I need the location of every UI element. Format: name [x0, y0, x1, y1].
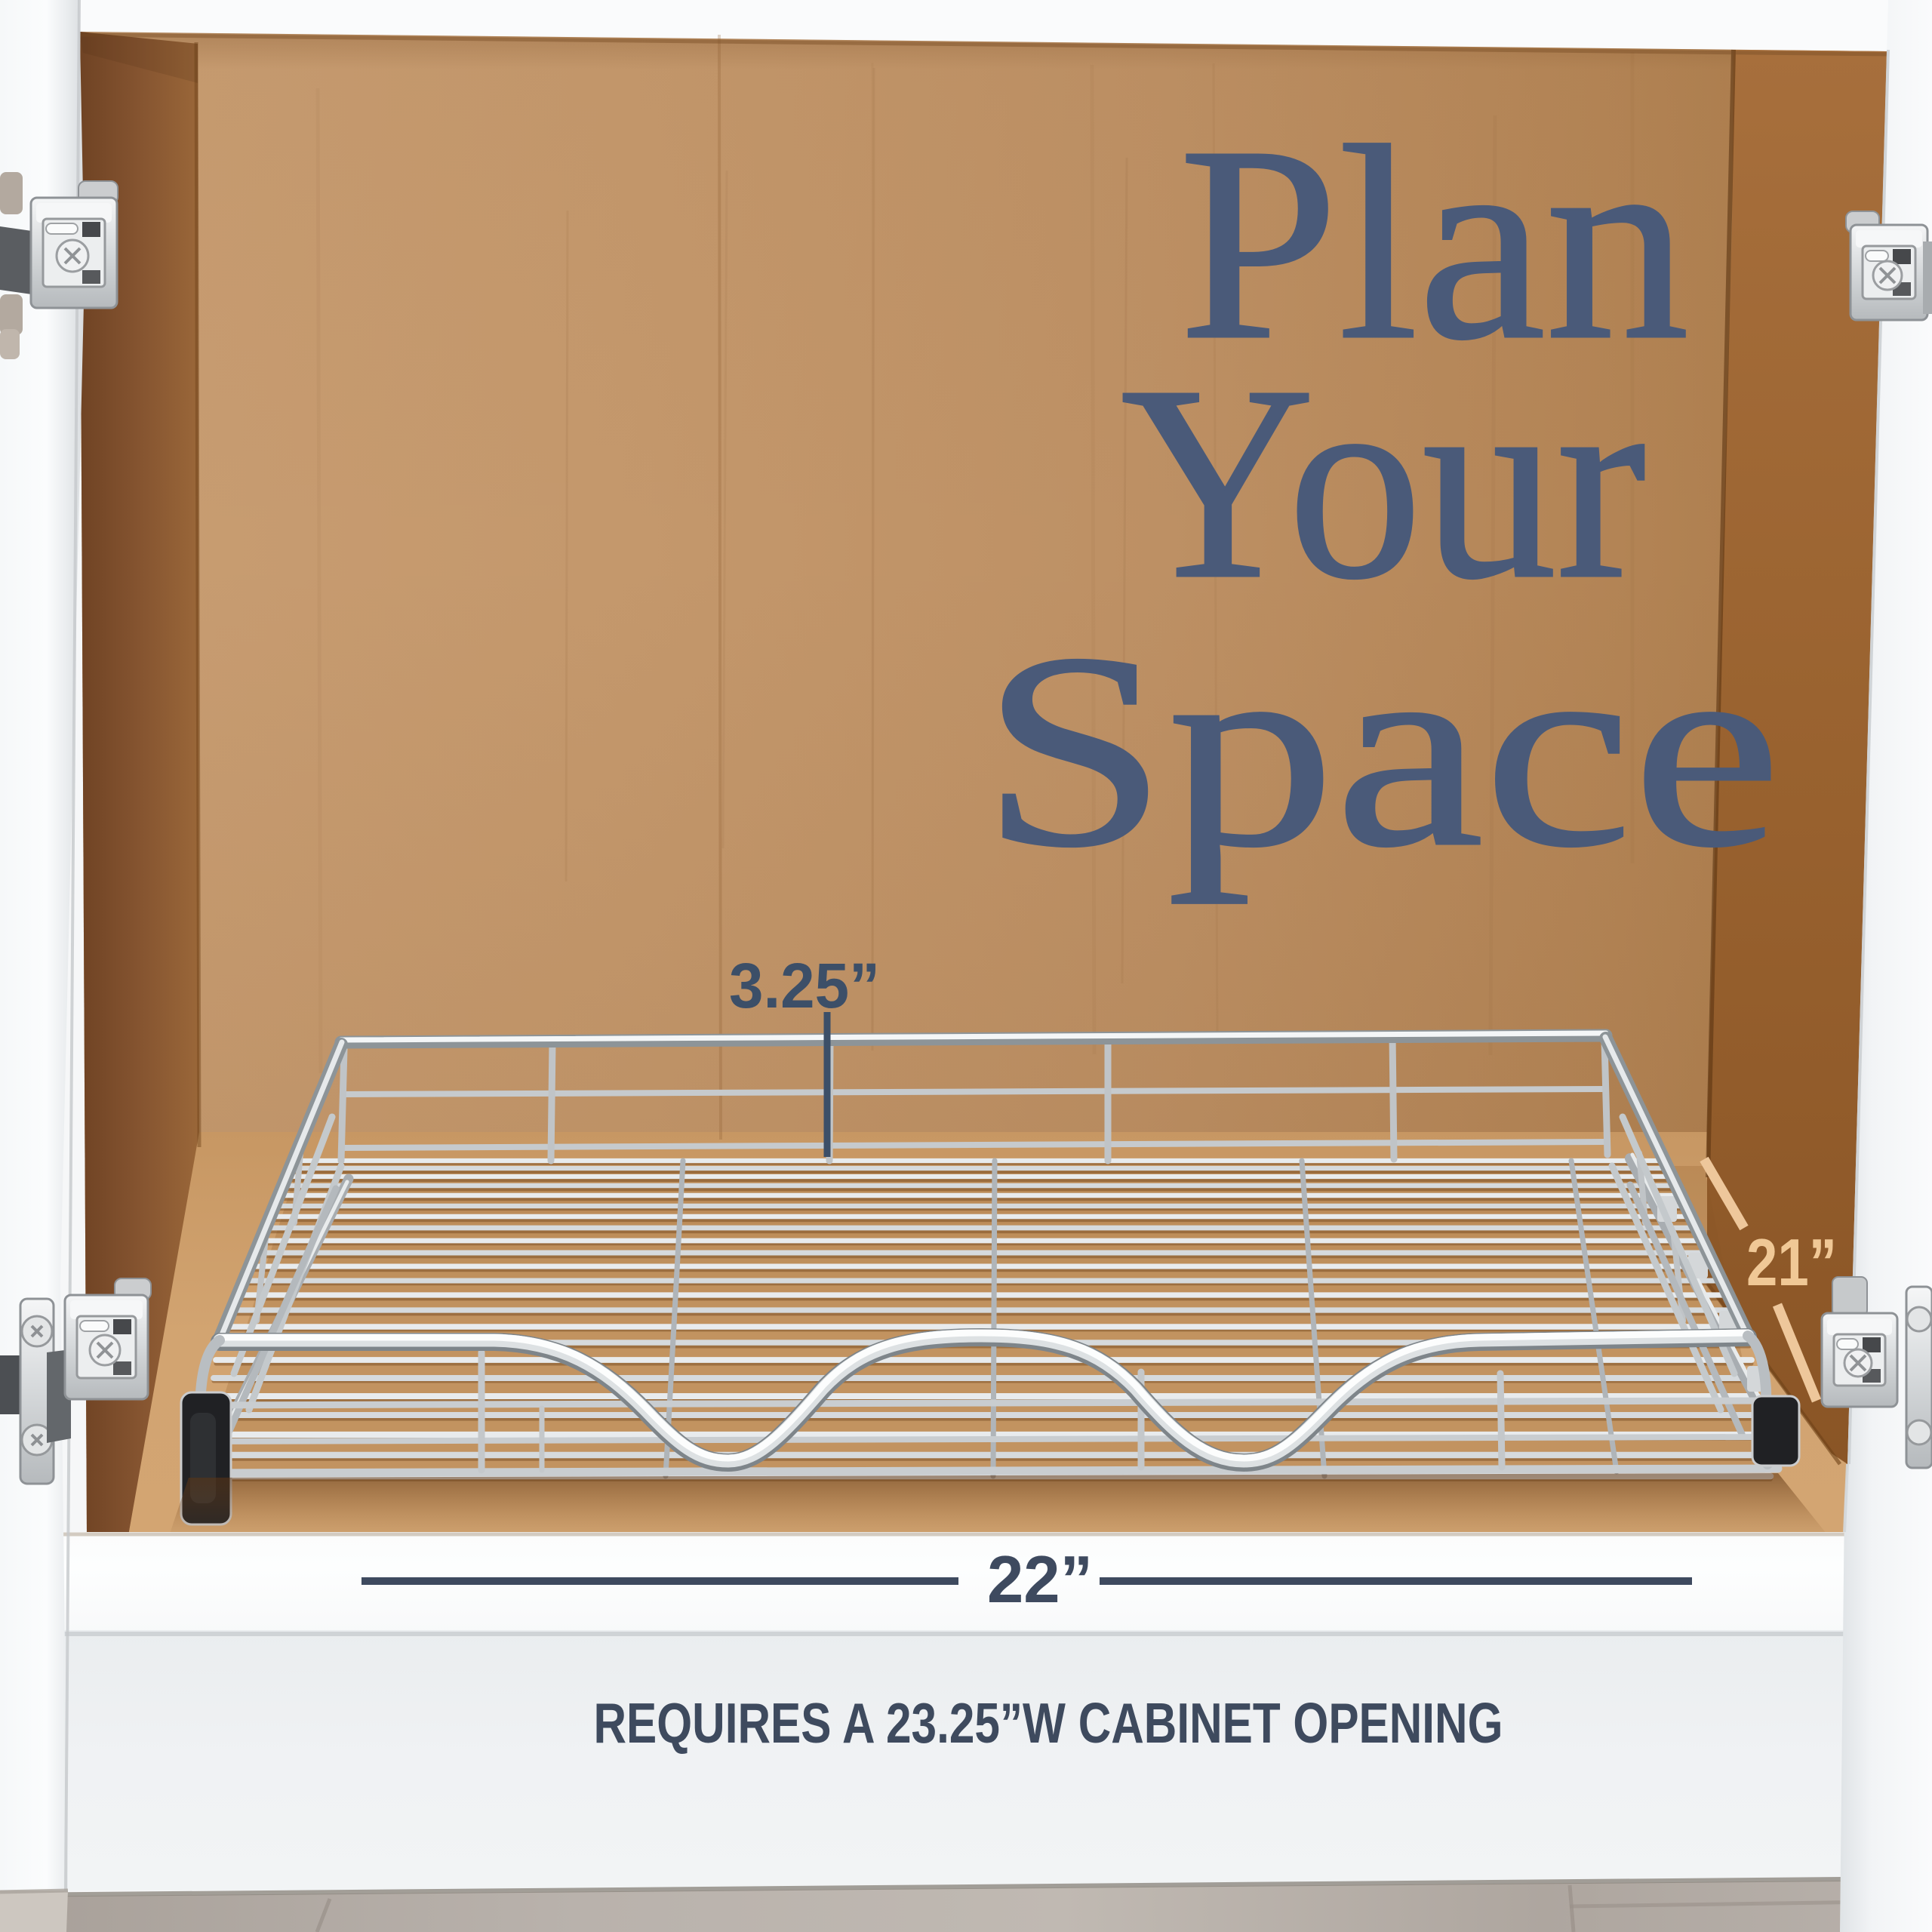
svg-text:21”: 21”: [1746, 1225, 1837, 1300]
svg-text:REQUIRES A 23.25”W CABINET OPE: REQUIRES A 23.25”W CABINET OPENING: [594, 1691, 1503, 1755]
svg-text:Your: Your: [1121, 328, 1646, 636]
svg-text:Space: Space: [981, 596, 1781, 905]
svg-text:22”: 22”: [987, 1542, 1093, 1617]
svg-text:3.25”: 3.25”: [729, 950, 880, 1021]
